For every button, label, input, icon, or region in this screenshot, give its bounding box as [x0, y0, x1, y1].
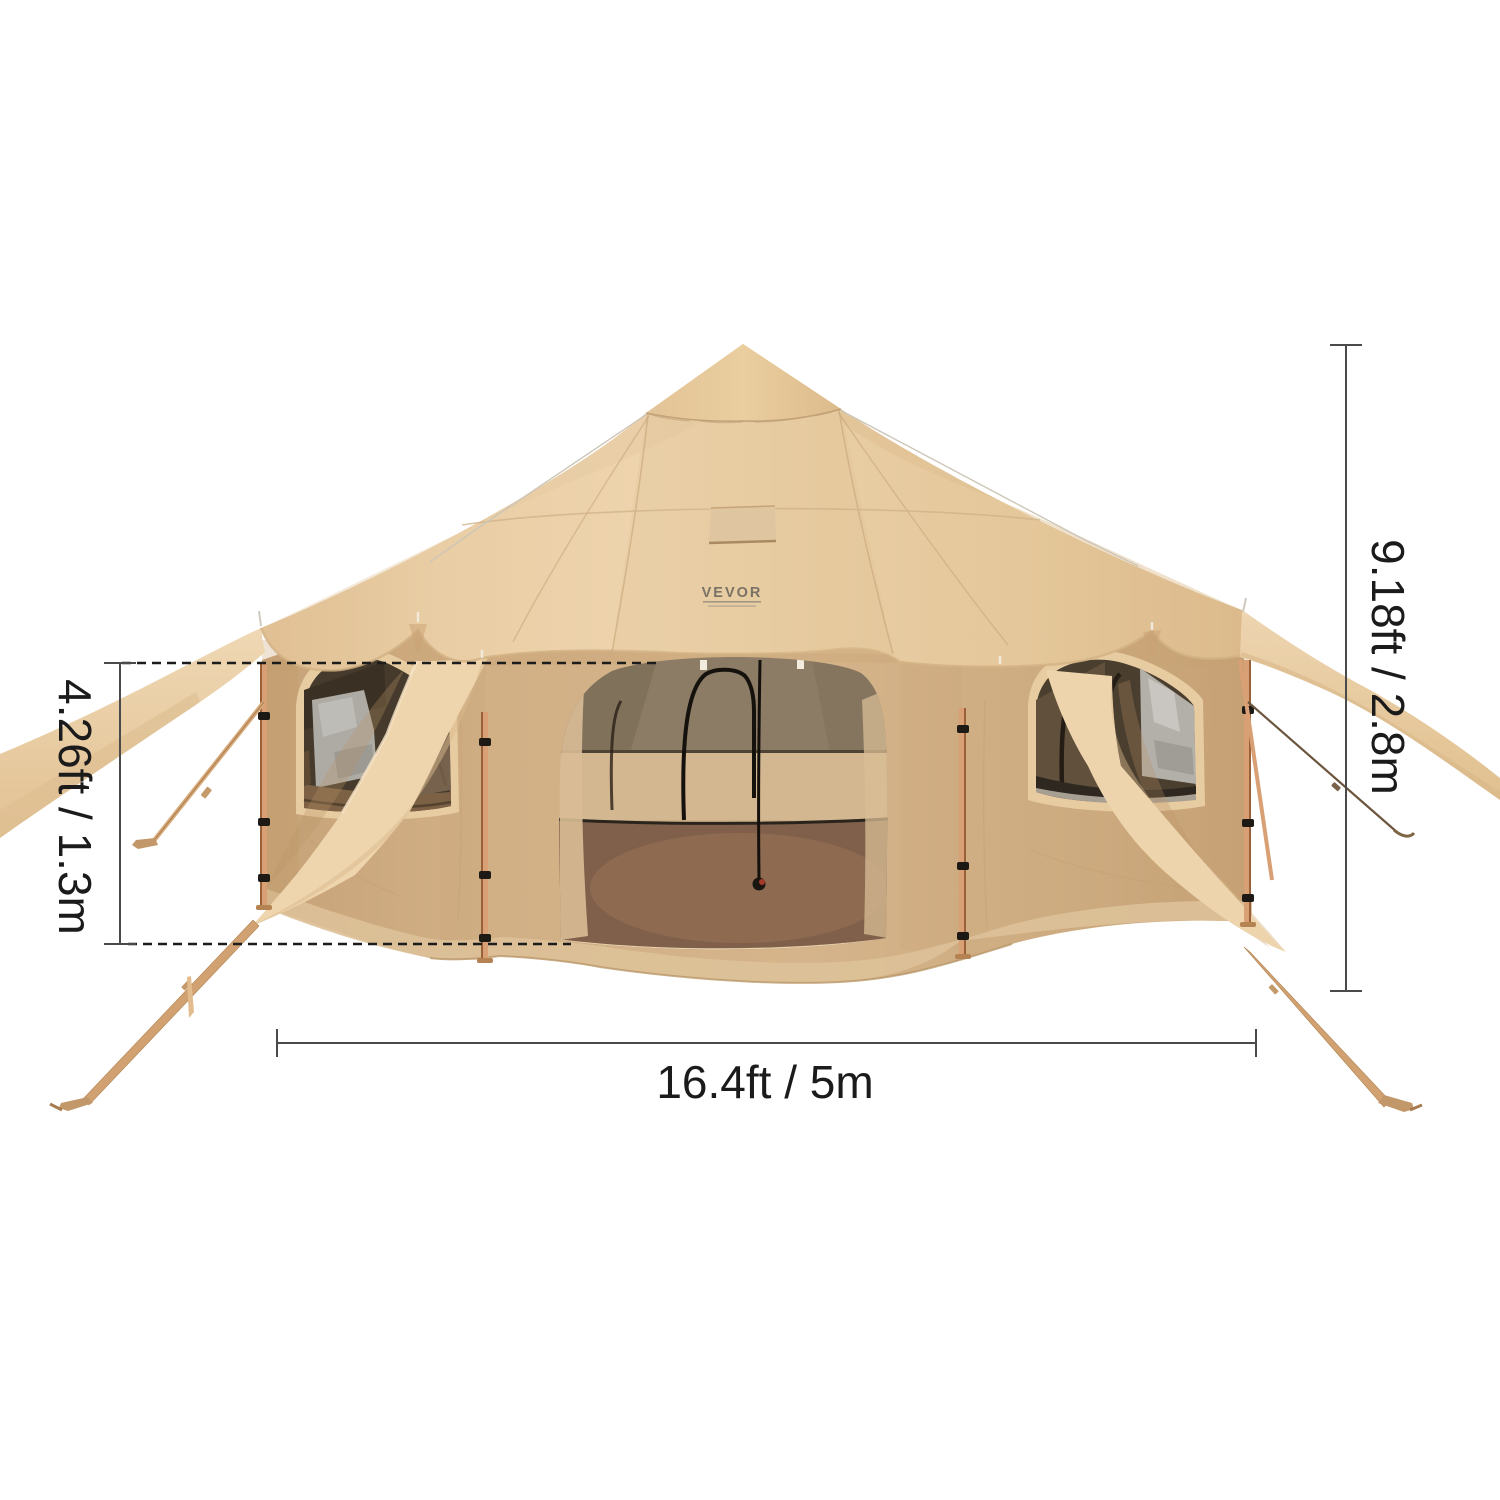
svg-text:4.26ft / 1.3m: 4.26ft / 1.3m — [49, 679, 101, 935]
svg-text:9.18ft / 2.8m: 9.18ft / 2.8m — [1362, 539, 1414, 795]
svg-text:VEVOR: VEVOR — [702, 585, 763, 601]
svg-text:16.4ft / 5m: 16.4ft / 5m — [656, 1056, 873, 1108]
